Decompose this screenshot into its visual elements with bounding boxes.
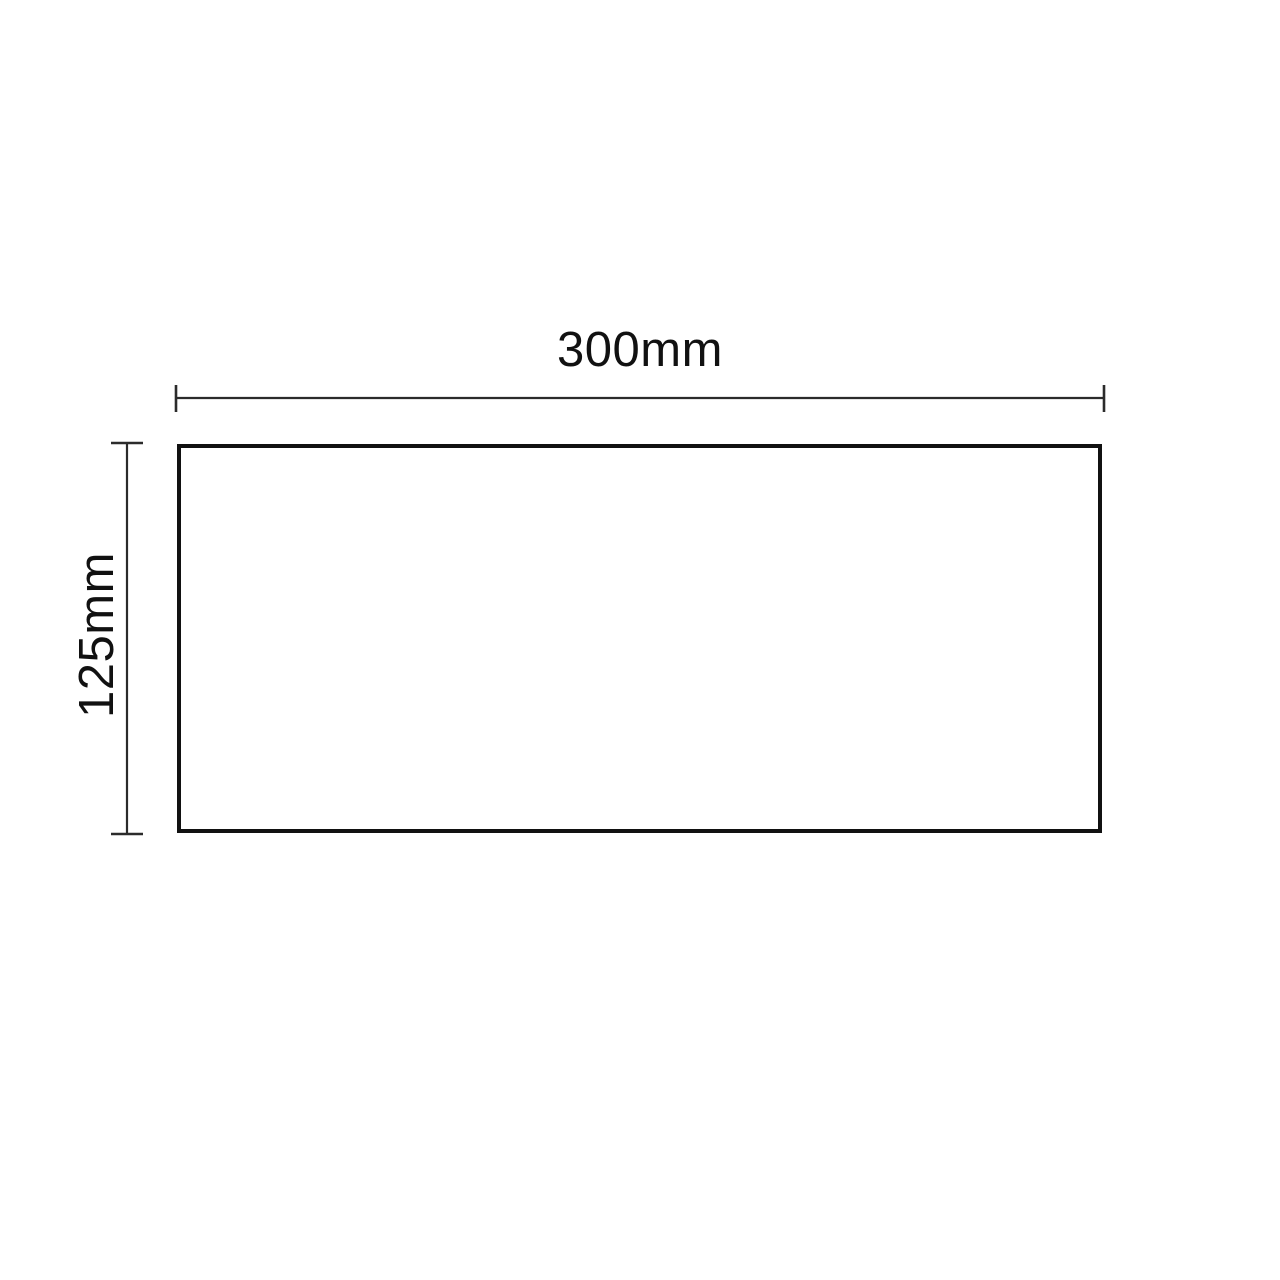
width-dimension: 300mm [176, 323, 1104, 412]
width-dimension-label: 300mm [557, 323, 723, 377]
drawing-canvas: 300mm 125mm [0, 0, 1280, 1280]
height-dimension: 125mm [70, 443, 143, 834]
height-dimension-label: 125mm [70, 552, 124, 718]
part-outline-rect [179, 446, 1100, 831]
dimension-diagram: 300mm 125mm [0, 0, 1280, 1280]
